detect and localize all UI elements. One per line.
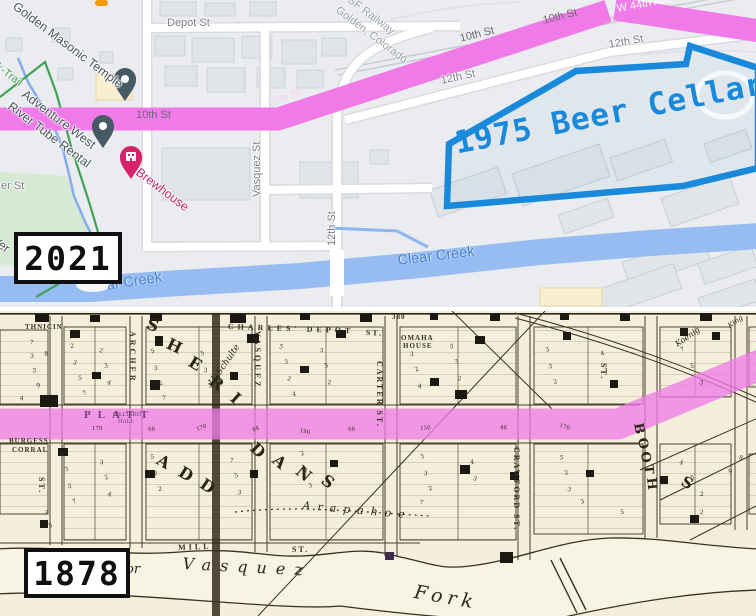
blocks-row1: [0, 327, 756, 404]
bridge-12th-st: [330, 250, 344, 296]
creek-branch: [330, 228, 428, 247]
heavy-street: [212, 313, 220, 616]
screenshot-stage: Depot St10th St10th St10th St10th StW 44…: [0, 0, 756, 616]
pin-adventure-west[interactable]: [92, 115, 114, 148]
year-text-1878: 1878: [33, 554, 120, 593]
year-text-2021: 2021: [24, 239, 111, 278]
year-label-2021: 2021: [14, 232, 122, 284]
blocks-row2: [0, 444, 756, 540]
historic-map-1878[interactable]: CHARLES' DEPOTST.380ARCHERVASQUEZCARTER …: [0, 311, 756, 616]
cropped-poi-icon: [95, 0, 108, 6]
top-rail-band: [0, 313, 756, 315]
modern-map-2021[interactable]: Depot St10th St10th St10th St10th StW 44…: [0, 0, 756, 307]
year-label-1878: 1878: [24, 548, 130, 598]
beer-cellars-polygon[interactable]: [447, 46, 756, 206]
pin-brewhouse[interactable]: [120, 146, 142, 179]
